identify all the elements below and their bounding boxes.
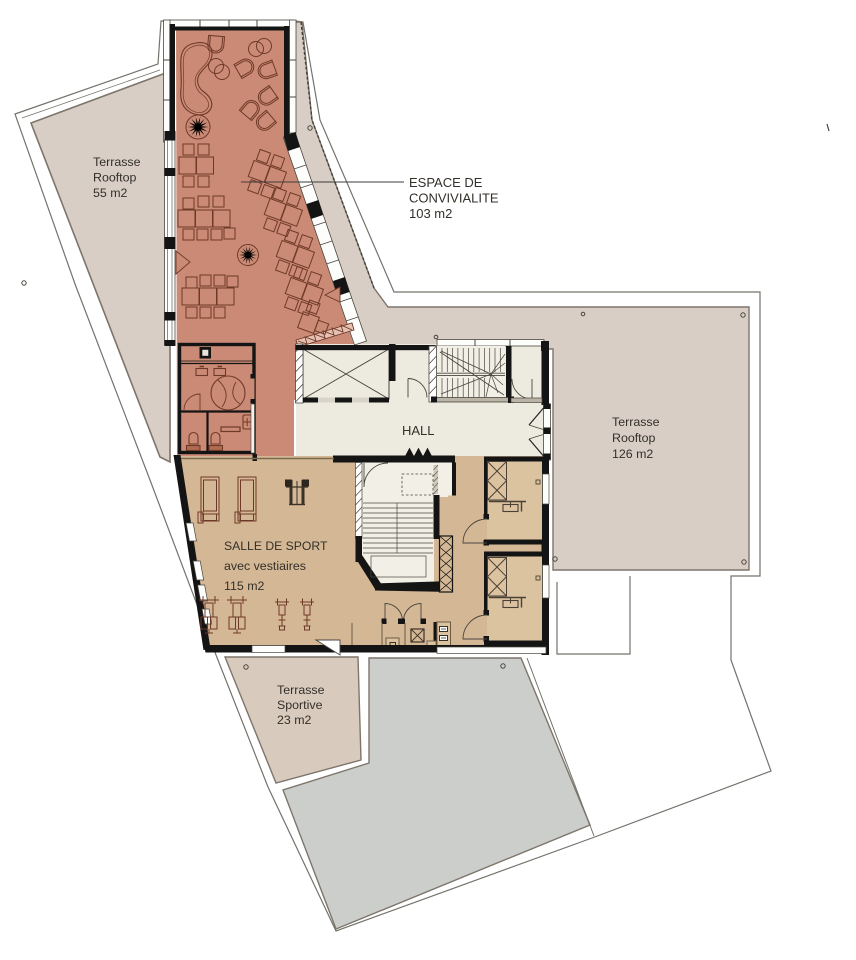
svg-text:HALL: HALL bbox=[402, 423, 435, 438]
svg-text:TerrasseRooftop126 m2: TerrasseRooftop126 m2 bbox=[612, 415, 660, 461]
svg-text:ESPACE DECONVIVIALITE103 m2: ESPACE DECONVIVIALITE103 m2 bbox=[409, 175, 499, 221]
